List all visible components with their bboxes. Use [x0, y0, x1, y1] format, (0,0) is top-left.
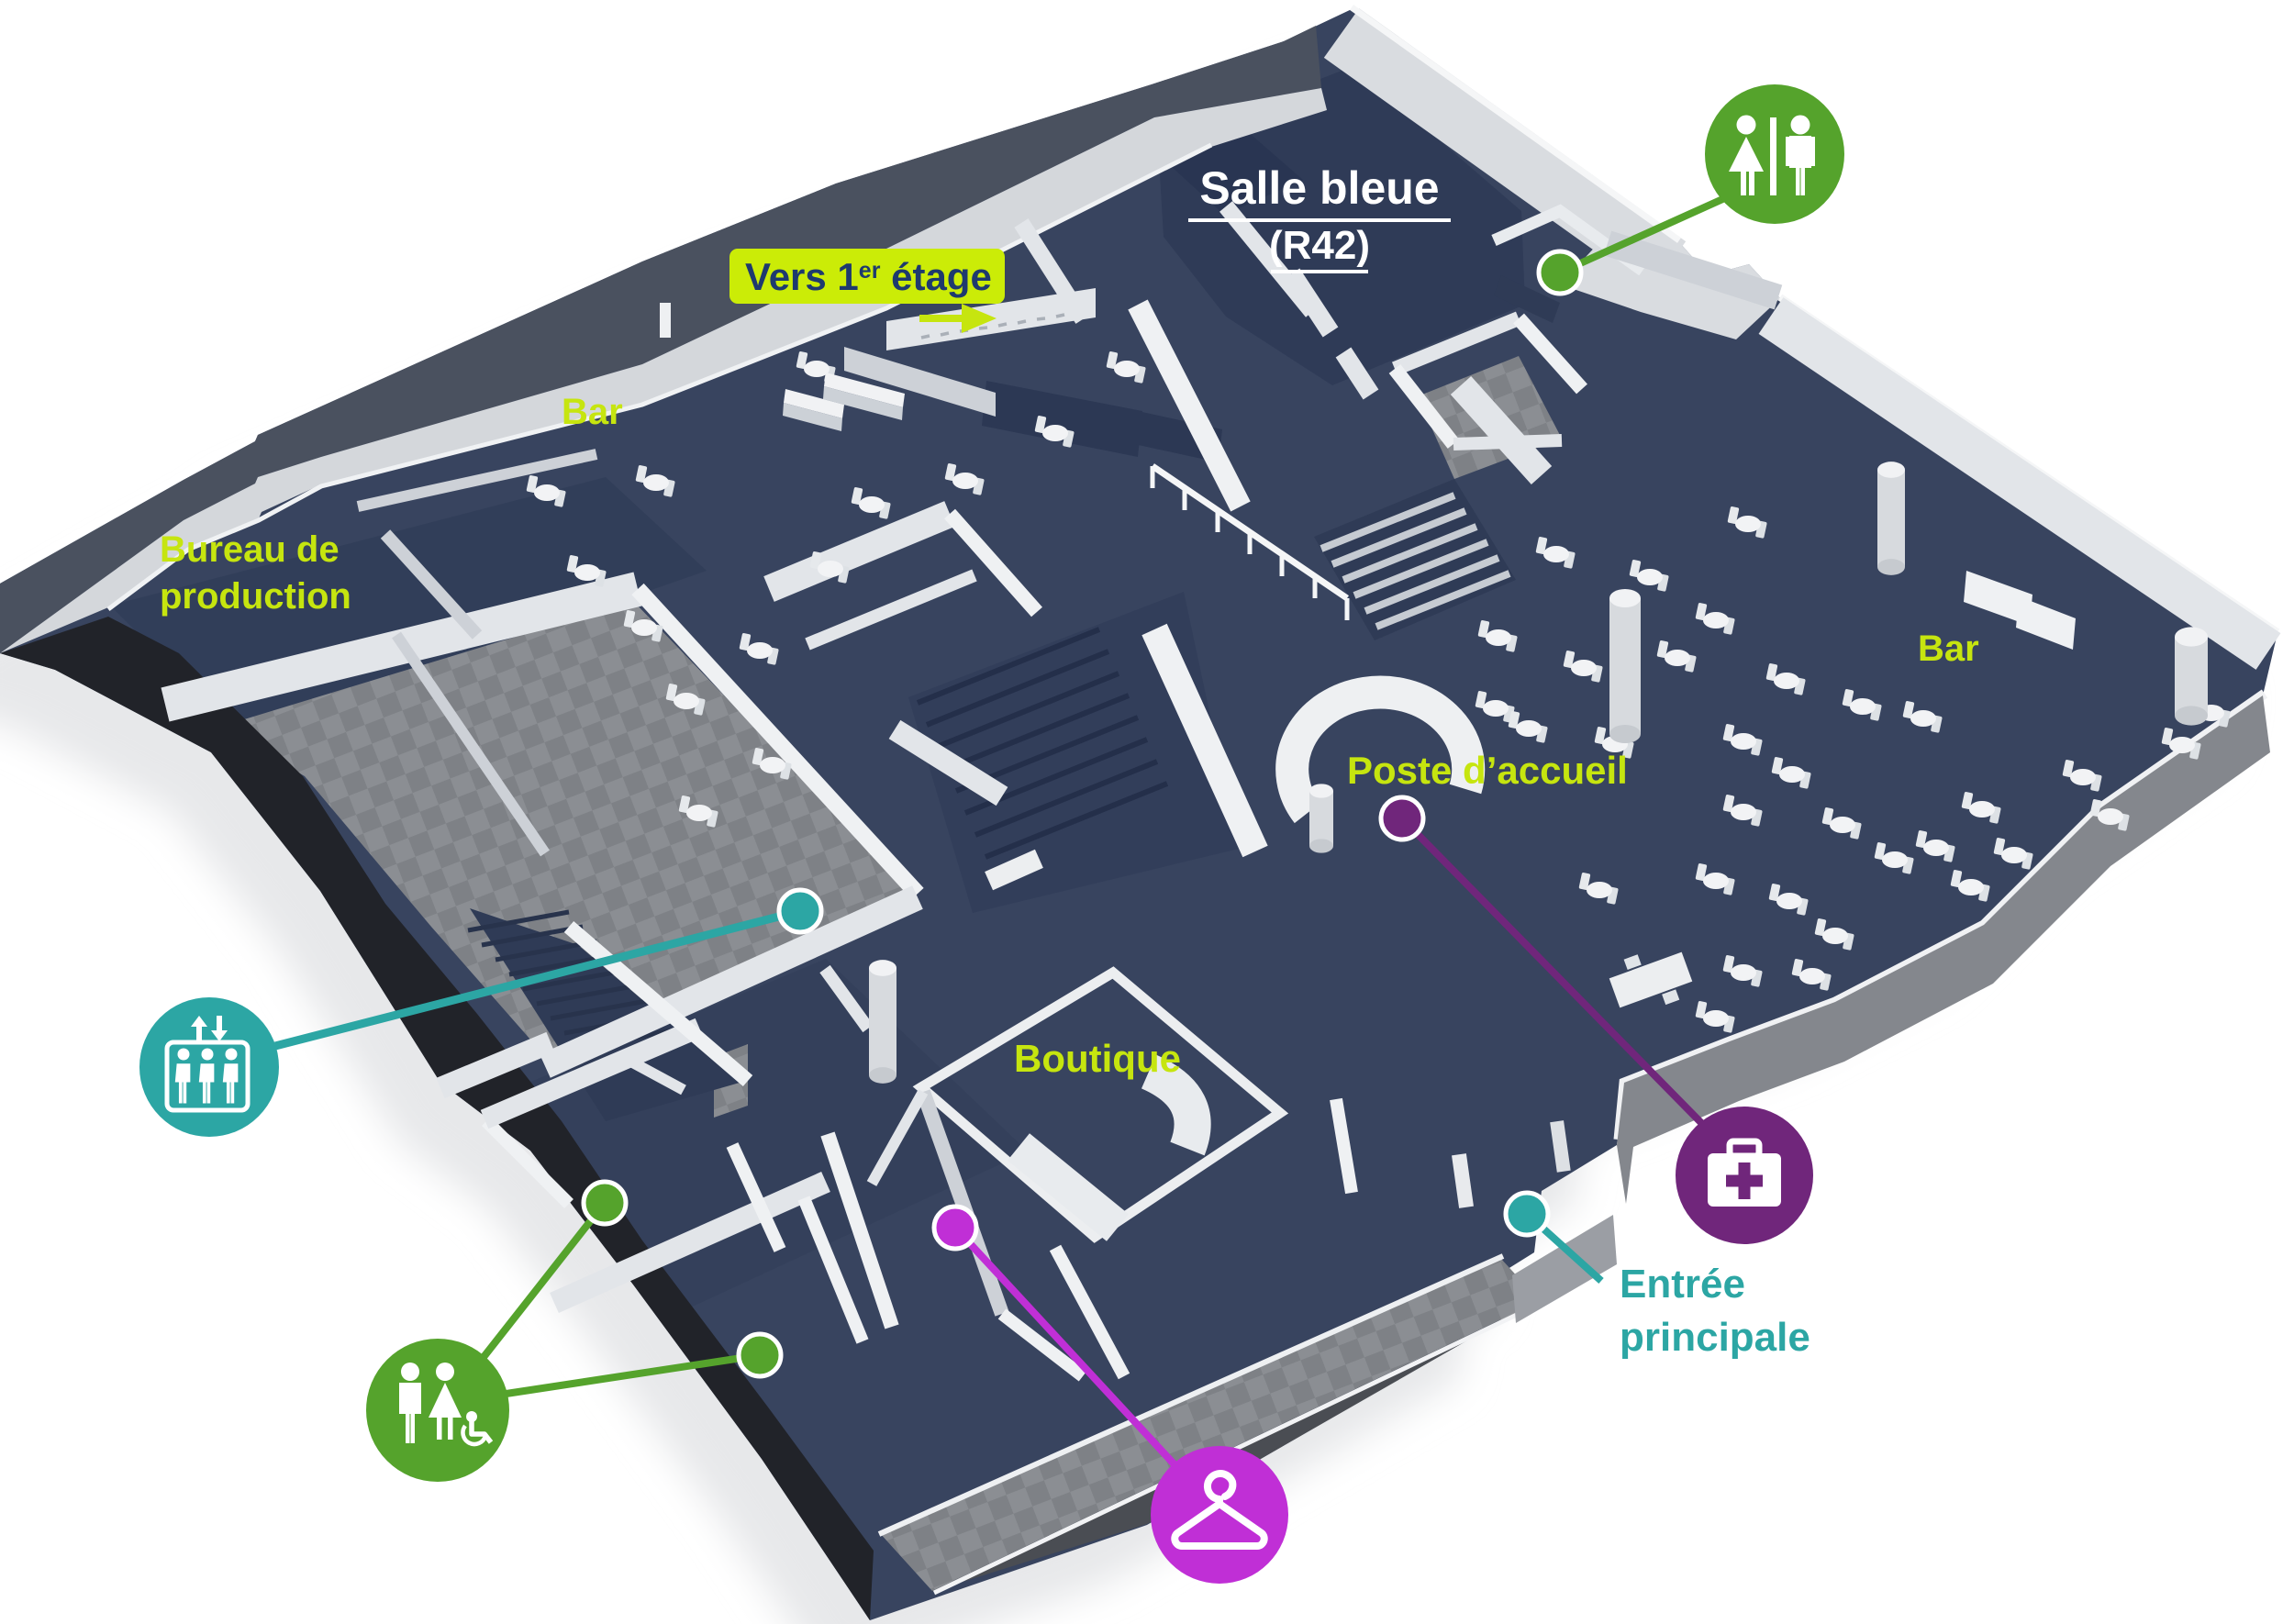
svg-text:Bar: Bar	[562, 392, 623, 432]
svg-text:Bureau de: Bureau de	[160, 529, 340, 570]
svg-text:production: production	[160, 576, 351, 617]
svg-text:Poste d’accueil: Poste d’accueil	[1347, 749, 1628, 792]
svg-text:Boutique: Boutique	[1014, 1037, 1181, 1080]
svg-text:principale: principale	[1620, 1315, 1810, 1360]
svg-text:Entrée: Entrée	[1620, 1262, 1745, 1307]
svg-text:Bar: Bar	[1918, 628, 1979, 669]
svg-text:(R42): (R42)	[1269, 223, 1370, 268]
svg-text:Salle bleue: Salle bleue	[1199, 162, 1439, 214]
